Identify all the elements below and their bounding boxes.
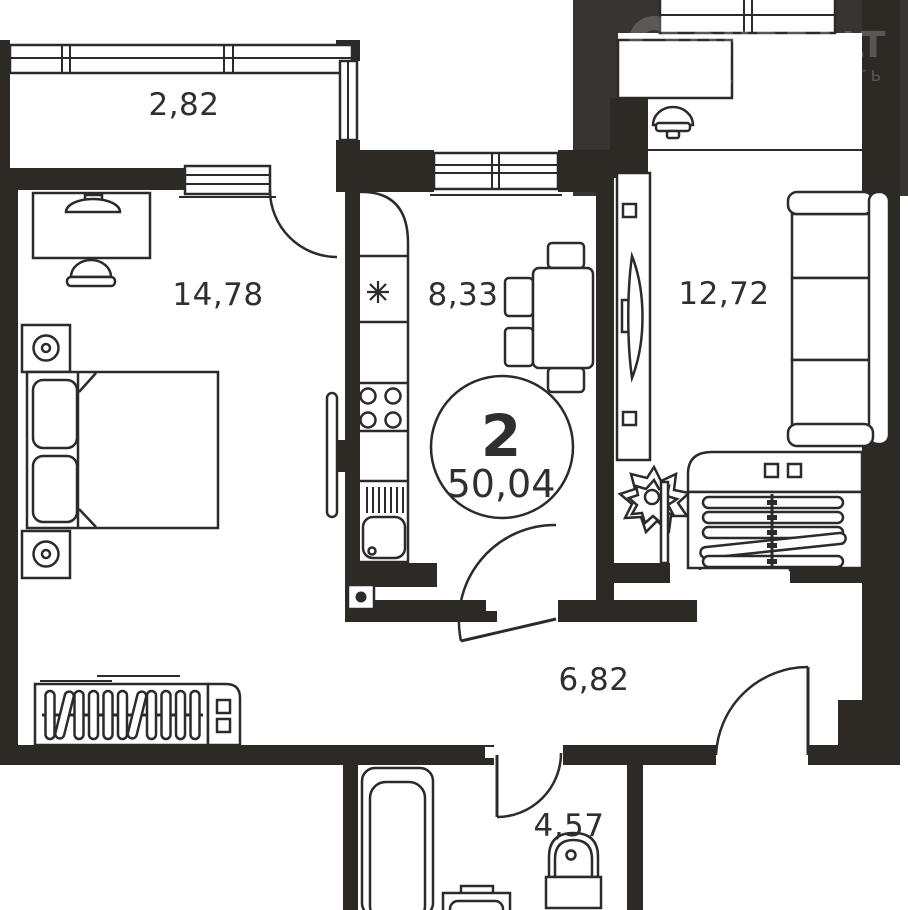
nightstand (22, 531, 70, 578)
balcony-side-window (340, 61, 357, 140)
sofa (788, 192, 889, 446)
bathtub (362, 768, 433, 910)
bedroom-wardrobe (35, 676, 240, 745)
duct-shaft (348, 585, 374, 609)
total-area-label: 50,04 (447, 462, 556, 506)
watermark-brand: ONREALT (688, 25, 888, 66)
balcony-window (10, 45, 352, 73)
kitchen-counter (360, 192, 408, 562)
kitchen-window (430, 153, 562, 195)
tv-stand (617, 173, 650, 460)
fridge-icon (367, 281, 389, 303)
closet-door (661, 482, 668, 563)
nightstand (22, 325, 70, 372)
watermark-tagline: НЕДВИЖИМОСТЬ (690, 67, 886, 85)
hallway-area-label: 6,82 (558, 662, 629, 698)
living-room-area-label: 12,72 (678, 276, 769, 312)
floor-plan-page: 2,82 14,78 8,33 12,72 6,82 4,57 2 50,04 … (0, 0, 908, 910)
floor-plan: 2,82 14,78 8,33 12,72 6,82 4,57 2 50,04 … (0, 0, 908, 910)
closet (661, 452, 862, 568)
pillow (33, 380, 77, 448)
kitchen-area-label: 8,33 (427, 277, 498, 313)
bedroom-area-label: 14,78 (172, 277, 263, 313)
area-badge: 2 50,04 (431, 376, 573, 518)
bathroom-area-label: 4,57 (533, 808, 604, 844)
balcony-area-label: 2,82 (148, 87, 219, 123)
bed (27, 372, 218, 528)
bedroom-balcony-window (179, 166, 276, 197)
pillow (33, 456, 77, 522)
dining-table (533, 268, 593, 368)
rooms-count-label: 2 (481, 402, 521, 470)
toilet (546, 833, 601, 908)
